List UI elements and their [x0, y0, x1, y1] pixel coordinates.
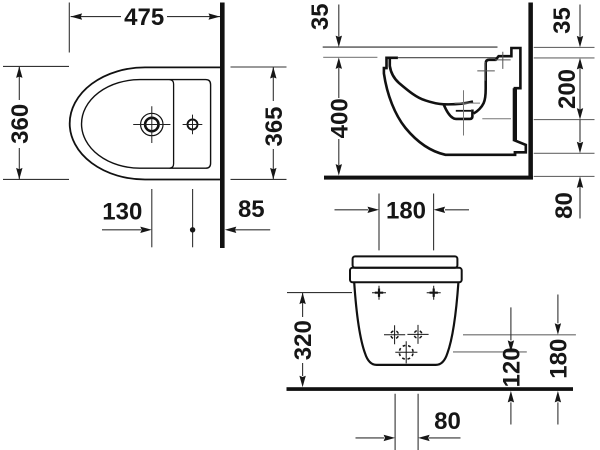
svg-text:365: 365: [261, 106, 288, 146]
svg-text:80: 80: [434, 408, 461, 435]
svg-text:180: 180: [386, 198, 426, 225]
svg-text:80: 80: [551, 192, 578, 219]
svg-text:475: 475: [124, 4, 164, 31]
svg-text:85: 85: [238, 196, 265, 223]
svg-text:180: 180: [546, 339, 573, 379]
svg-text:35: 35: [549, 7, 576, 34]
svg-text:200: 200: [554, 69, 581, 109]
svg-text:130: 130: [102, 198, 142, 225]
svg-text:320: 320: [290, 320, 317, 360]
svg-text:400: 400: [327, 98, 354, 138]
svg-text:35: 35: [307, 3, 334, 30]
svg-text:120: 120: [499, 347, 526, 387]
svg-text:360: 360: [7, 104, 34, 144]
